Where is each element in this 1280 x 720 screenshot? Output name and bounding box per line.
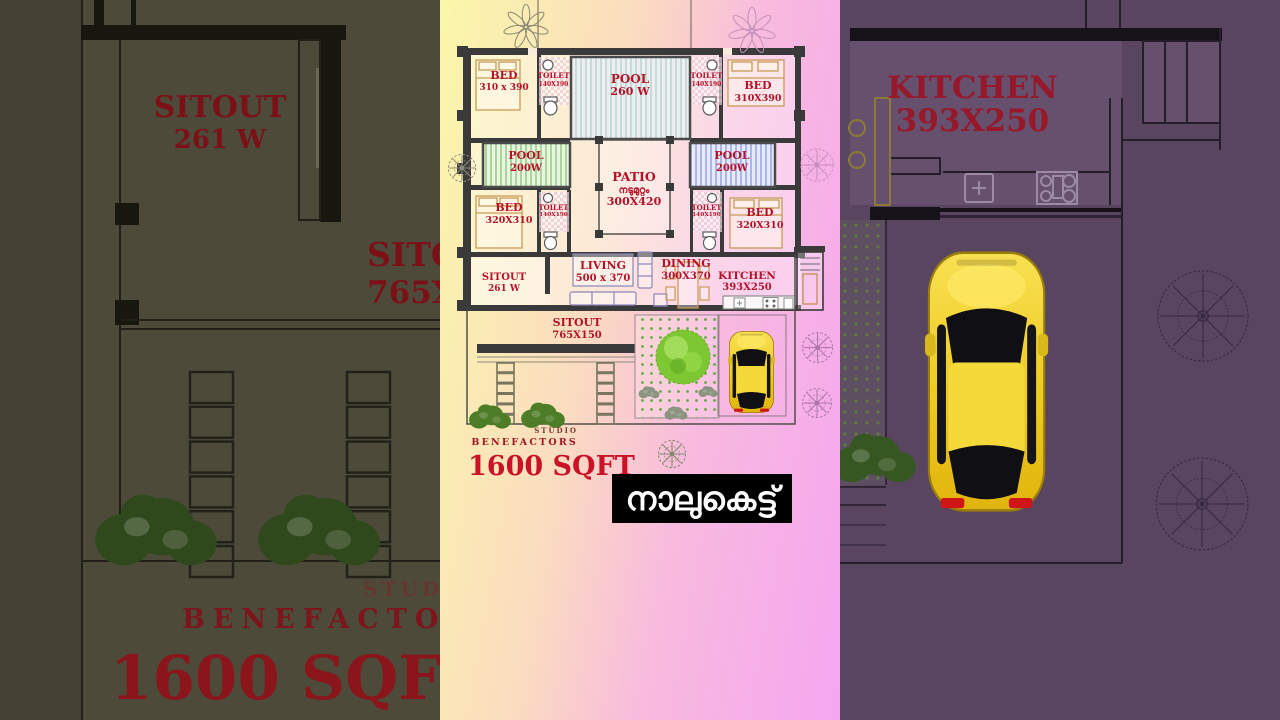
area-text: 1600 SQFT	[468, 451, 598, 483]
tree-sketch-icon	[801, 149, 833, 181]
room-label-sitout-side: SITOUT261 W	[474, 272, 534, 294]
title-banner-text: നാലുകെട്ട്	[626, 479, 779, 519]
area-text-zoom: 1600 SQFT	[110, 643, 440, 715]
car-top-icon-zoom	[925, 253, 1048, 511]
background-zoom-left-panel: SITOUT 261 W SITOUT 765X150 STUDIO BENEF…	[0, 0, 440, 720]
room-label-kitchen: KITCHEN393X250	[716, 270, 778, 294]
stair-annex	[797, 252, 823, 310]
room-label-bed-br: BED320X310	[730, 207, 790, 231]
brand-name: BENEFACTORS	[468, 437, 578, 448]
car-top-icon	[728, 332, 775, 413]
room-label-sitout-front-zoom: SITOUT 765X150	[367, 236, 440, 312]
tree-sketch-icon	[803, 389, 832, 418]
room-label-toilet-bl: TOILET140X190	[536, 204, 571, 219]
kitchen-counter	[723, 296, 795, 309]
shrub-icon	[521, 403, 565, 428]
room-label-bed-tr: BED310X390	[728, 80, 788, 104]
tree-sketch-icon	[658, 440, 685, 467]
left-door-leaf	[316, 68, 319, 168]
room-label-toilet-br: TOILET140X190	[689, 204, 724, 219]
room-label-dining: DINING300X370	[655, 258, 717, 283]
video-frame: SITOUT 261 W SITOUT 765X150 STUDIO BENEF…	[0, 0, 1280, 720]
plant-sketch-icon	[503, 4, 549, 49]
studio-text-zoom: STUDIO	[363, 578, 440, 602]
room-label-bed-tl: BED310 x 390	[474, 70, 534, 94]
room-label-sitout-side-zoom: SITOUT 261 W	[150, 90, 290, 156]
plant-sketch-icon	[728, 7, 776, 54]
brand-name-zoom: BENEFACTORS	[182, 604, 440, 636]
tree-sketch-icon	[448, 154, 475, 181]
shrub-icon	[469, 404, 511, 428]
room-label-toilet-tl: TOILET140X190	[536, 72, 571, 88]
floor-plan-drawing	[440, 0, 840, 720]
room-label-bed-bl: BED320X310	[478, 202, 540, 226]
room-label-pool-right: POOL200W	[692, 150, 772, 175]
front-sitout-porch	[477, 344, 635, 362]
background-zoom-right-panel: KITCHEN 393X250	[840, 0, 1280, 720]
studio-text: STUDIO	[468, 427, 578, 435]
tree-sketch-icon	[803, 333, 833, 363]
title-banner: നാലുകെട്ട്	[612, 474, 792, 523]
room-label-pool-left: POOL200W	[486, 150, 566, 175]
room-label-kitchen-zoom: KITCHEN 393X250	[880, 72, 1065, 137]
floor-plan-panel: BED310 x 390 TOILET140X190 POOL260 W TOI…	[440, 0, 840, 720]
room-label-sitout-front: SITOUT765X150	[542, 317, 612, 342]
room-label-toilet-tr: TOILET140X190	[689, 72, 724, 88]
room-label-patio: PATIO നടുമുറ്റം 300X420	[599, 170, 669, 209]
garden-tree-icon	[656, 330, 710, 384]
room-label-living: LIVING500 x 370	[568, 260, 638, 285]
room-label-pool-top: POOL260 W	[590, 72, 670, 99]
